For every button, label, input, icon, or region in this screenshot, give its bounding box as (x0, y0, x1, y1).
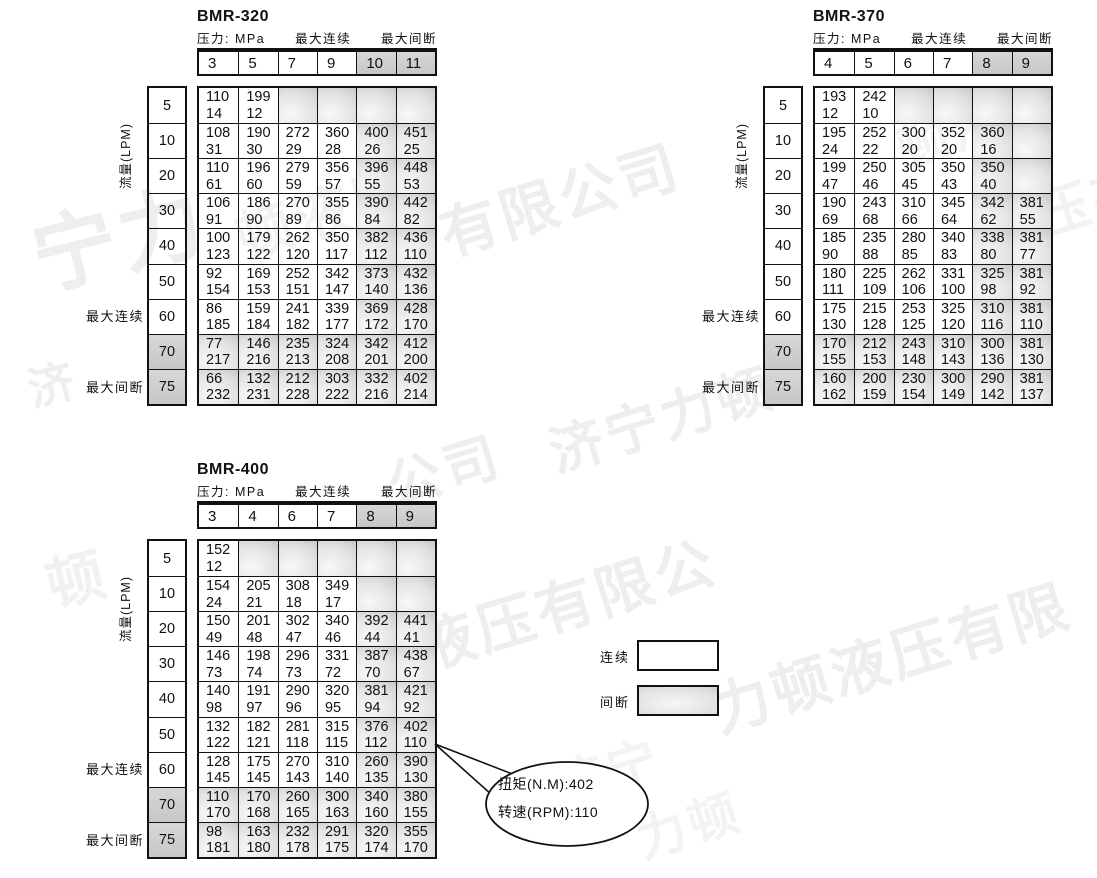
data-cell: 340160 (356, 787, 395, 822)
table-body: 1521215424205213081834917150492014830247… (197, 539, 437, 859)
flow-axis-label: 流量(LPM) (115, 100, 131, 212)
data-cell: 34262 (972, 193, 1011, 228)
speed-value: 31 (206, 142, 238, 159)
speed-value: 55 (364, 177, 395, 194)
torque-value: 451 (404, 125, 435, 142)
speed-value: 168 (246, 805, 277, 822)
torque-value: 356 (325, 160, 356, 177)
torque-value: 185 (822, 230, 854, 247)
speed-value: 170 (404, 317, 435, 334)
speed-value: 74 (246, 665, 277, 682)
watermark-text: 济 (20, 344, 84, 420)
torque-value: 262 (286, 230, 317, 247)
speed-value: 160 (364, 805, 395, 822)
speed-value: 46 (325, 630, 356, 647)
speed-value: 12 (206, 559, 238, 576)
torque-value: 436 (404, 230, 435, 247)
max-intermittent-row-label: 最大间断 (82, 370, 144, 406)
speed-value: 170 (206, 805, 238, 822)
data-cell: 160162 (815, 369, 854, 404)
data-cell: 44141 (396, 611, 435, 646)
data-cell: 10831 (199, 123, 238, 158)
torque-value: 175 (246, 754, 277, 771)
pressure-header-cell: 11 (396, 52, 435, 74)
data-cell: 30545 (894, 158, 933, 193)
speed-value: 20 (941, 142, 972, 159)
speed-value: 222 (325, 387, 356, 404)
torque-value: 325 (941, 301, 972, 318)
data-cell: 20148 (238, 611, 277, 646)
flow-row-header-cell: 20 (149, 158, 185, 193)
data-cell: 18690 (238, 193, 277, 228)
speed-value: 162 (822, 387, 854, 404)
pressure-header-cell: 3 (199, 52, 238, 74)
pressure-header-cell: 9 (1012, 52, 1051, 74)
speed-value: 62 (980, 212, 1011, 229)
speed-value: 92 (1020, 282, 1051, 299)
torque-value: 303 (325, 371, 356, 388)
flow-axis-label: 流量(LPM) (115, 553, 131, 665)
flow-row-header-cell: 20 (765, 158, 801, 193)
data-cell: 15049 (199, 611, 238, 646)
speed-value: 43 (941, 177, 972, 194)
data-cell: 262120 (278, 228, 317, 263)
speed-value: 96 (286, 700, 317, 717)
speed-value: 73 (206, 665, 238, 682)
speed-value: 155 (822, 352, 854, 369)
data-cell (396, 576, 435, 611)
data-cell: 331100 (933, 264, 972, 299)
speed-value: 72 (325, 665, 356, 682)
data-cell: 34917 (317, 576, 356, 611)
speed-value: 165 (286, 805, 317, 822)
data-cell: 241182 (278, 299, 317, 334)
torque-value: 146 (206, 648, 238, 665)
data-cell: 350117 (317, 228, 356, 263)
flow-row-header-cell: 20 (149, 611, 185, 646)
torque-value: 305 (902, 160, 933, 177)
torque-value: 308 (286, 578, 317, 595)
speed-value: 232 (206, 387, 238, 404)
data-cell: 320174 (356, 822, 395, 857)
torque-value: 252 (862, 125, 893, 142)
max-continuous-row-label: 最大连续 (82, 752, 144, 788)
data-cell: 19874 (238, 646, 277, 681)
speed-value: 14 (206, 106, 238, 123)
speed-value: 143 (941, 352, 972, 369)
torque-value: 169 (246, 266, 277, 283)
data-cell: 30818 (278, 576, 317, 611)
data-cell: 38194 (356, 681, 395, 716)
speed-value: 231 (246, 387, 277, 404)
speed-value: 180 (246, 840, 277, 857)
speed-value: 118 (286, 735, 317, 752)
torque-value: 272 (286, 125, 317, 142)
data-cell: 20521 (238, 576, 277, 611)
flow-row-header-cell: 50 (149, 717, 185, 752)
data-cell: 212228 (278, 369, 317, 404)
torque-value: 290 (286, 683, 317, 700)
torque-value: 339 (325, 301, 356, 318)
table-body: 1931224210195242522230020352203601619947… (813, 86, 1053, 406)
speed-value: 85 (902, 247, 933, 264)
table-subheader: 压力: MPa最大连续最大间断 (197, 29, 437, 50)
speed-value: 17 (325, 595, 356, 612)
torque-value: 338 (980, 230, 1011, 247)
speed-value: 120 (941, 317, 972, 334)
pressure-header-row: 456789 (813, 50, 1053, 76)
callout-speed-text: 转速(RPM):110 (498, 802, 598, 822)
speed-value: 216 (246, 352, 277, 369)
data-cell: 402214 (396, 369, 435, 404)
data-cell: 42192 (396, 681, 435, 716)
torque-value: 230 (902, 371, 933, 388)
torque-value: 193 (822, 89, 854, 106)
data-cell: 23588 (854, 228, 893, 263)
speed-value: 20 (902, 142, 933, 159)
torque-value: 412 (404, 336, 435, 353)
data-cell: 163180 (238, 822, 277, 857)
legend-continuous-swatch (637, 640, 719, 671)
data-cell: 310116 (972, 299, 1011, 334)
speed-value: 184 (246, 317, 277, 334)
flow-row-header-cell: 10 (765, 123, 801, 158)
speed-value: 109 (862, 282, 893, 299)
speed-value: 213 (286, 352, 317, 369)
speed-value: 61 (206, 177, 238, 194)
torque-value: 225 (862, 266, 893, 283)
data-cell: 31066 (894, 193, 933, 228)
speed-value: 174 (364, 840, 395, 857)
speed-value: 208 (325, 352, 356, 369)
data-cell (396, 88, 435, 123)
speed-value: 122 (246, 247, 277, 264)
data-cell: 230154 (894, 369, 933, 404)
pressure-header-cell: 9 (317, 52, 356, 74)
flow-row-header-cell: 10 (149, 123, 185, 158)
torque-value: 191 (246, 683, 277, 700)
torque-value: 281 (286, 719, 317, 736)
data-cell: 44853 (396, 158, 435, 193)
flow-row-header-cell: 50 (149, 264, 185, 299)
speed-value: 80 (980, 247, 1011, 264)
torque-value: 100 (206, 230, 238, 247)
max-intermittent-col-label: 最大间断 (381, 481, 437, 500)
data-cell: 376112 (356, 717, 395, 752)
data-cell: 19912 (238, 88, 277, 123)
max-continuous-col-label: 最大连续 (911, 28, 967, 47)
torque-value: 332 (364, 371, 395, 388)
torque-value: 66 (206, 371, 238, 388)
speed-value: 130 (1020, 352, 1051, 369)
speed-value: 67 (404, 665, 435, 682)
data-cell: 29096 (278, 681, 317, 716)
flow-row-header-cell: 50 (765, 264, 801, 299)
torque-value: 381 (1020, 195, 1051, 212)
torque-value: 86 (206, 301, 238, 318)
data-cell: 39244 (356, 611, 395, 646)
speed-value: 177 (325, 317, 356, 334)
data-cell: 381110 (1012, 299, 1051, 334)
data-cell: 412200 (396, 334, 435, 369)
torque-value: 180 (822, 266, 854, 283)
watermark-text: 有限公司 (428, 119, 690, 272)
torque-value: 340 (364, 789, 395, 806)
speed-value: 148 (902, 352, 933, 369)
speed-value: 25 (404, 142, 435, 159)
data-cell: 146216 (238, 334, 277, 369)
torque-value: 110 (206, 789, 238, 806)
flow-row-header-cell: 75 (149, 822, 185, 857)
torque-value: 428 (404, 301, 435, 318)
speed-value: 140 (364, 282, 395, 299)
speed-value: 86 (325, 212, 356, 229)
data-cell: 291175 (317, 822, 356, 857)
max-intermittent-row-label: 最大间断 (82, 823, 144, 859)
speed-value: 228 (286, 387, 317, 404)
data-cell: 77217 (199, 334, 238, 369)
torque-value: 232 (286, 824, 317, 841)
torque-value: 331 (941, 266, 972, 283)
speed-value: 111 (822, 282, 854, 299)
data-cell: 92154 (199, 264, 238, 299)
torque-value: 160 (822, 371, 854, 388)
data-cell: 32598 (972, 264, 1011, 299)
speed-value: 100 (941, 282, 972, 299)
callout-shape (425, 728, 685, 868)
speed-value: 140 (325, 770, 356, 787)
data-cell: 339177 (317, 299, 356, 334)
data-cell: 175145 (238, 752, 277, 787)
speed-value: 154 (902, 387, 933, 404)
speed-value: 137 (1020, 387, 1051, 404)
flow-row-header-cell: 70 (765, 334, 801, 369)
speed-value: 24 (206, 595, 238, 612)
data-cell: 38177 (1012, 228, 1051, 263)
torque-value: 381 (1020, 266, 1051, 283)
torque-value: 400 (364, 125, 395, 142)
data-cell: 19069 (815, 193, 854, 228)
torque-value: 190 (246, 125, 277, 142)
torque-value: 175 (822, 301, 854, 318)
data-cell: 27089 (278, 193, 317, 228)
data-cell: 15424 (199, 576, 238, 611)
speed-value: 59 (286, 177, 317, 194)
speed-value: 18 (286, 595, 317, 612)
catalog-page: 宁力顿液压有限公司济公司济宁力顿顿液压有限公力顿液压有限济宁力顿顿液压有济宁 B… (0, 0, 1097, 878)
data-cell: 303222 (317, 369, 356, 404)
speed-value: 94 (364, 700, 395, 717)
torque-value: 441 (404, 613, 435, 630)
speed-value: 200 (404, 352, 435, 369)
max-intermittent-col-label: 最大间断 (997, 28, 1053, 47)
flow-axis-label: 流量(LPM) (731, 100, 747, 212)
torque-value: 387 (364, 648, 395, 665)
data-cell (356, 88, 395, 123)
speed-value: 125 (902, 317, 933, 334)
torque-value: 310 (902, 195, 933, 212)
data-cell (396, 541, 435, 576)
torque-value: 270 (286, 195, 317, 212)
data-cell: 28085 (894, 228, 933, 263)
data-cell (1012, 88, 1051, 123)
pressure-header-row: 35791011 (197, 50, 437, 76)
speed-value: 92 (404, 700, 435, 717)
data-cell (356, 576, 395, 611)
data-cell: 19524 (815, 123, 854, 158)
data-cell (238, 541, 277, 576)
data-cell: 132122 (199, 717, 238, 752)
torque-value: 260 (364, 754, 395, 771)
torque-value: 280 (902, 230, 933, 247)
torque-value: 376 (364, 719, 395, 736)
speed-value: 47 (286, 630, 317, 647)
max-continuous-row-label: 最大连续 (82, 299, 144, 335)
speed-value: 123 (206, 247, 238, 264)
torque-value: 250 (862, 160, 893, 177)
torque-value: 241 (286, 301, 317, 318)
data-cell: 35220 (933, 123, 972, 158)
data-cell: 281118 (278, 717, 317, 752)
pressure-header-cell: 4 (815, 52, 854, 74)
flow-row-header-cell: 10 (149, 576, 185, 611)
speed-value: 112 (364, 247, 395, 264)
torque-value: 106 (206, 195, 238, 212)
performance-table-bmr-370: BMR-370压力: MPa最大连续最大间断456789510203040506… (698, 10, 1053, 410)
torque-value: 296 (286, 648, 317, 665)
torque-value: 355 (325, 195, 356, 212)
torque-value: 396 (364, 160, 395, 177)
torque-value: 201 (246, 613, 277, 630)
data-cell: 170168 (238, 787, 277, 822)
data-cell: 180111 (815, 264, 854, 299)
torque-value: 205 (246, 578, 277, 595)
data-cell: 14098 (199, 681, 238, 716)
max-continuous-col-label: 最大连续 (295, 28, 351, 47)
data-cell: 342147 (317, 264, 356, 299)
torque-value: 392 (364, 613, 395, 630)
data-cell: 44282 (396, 193, 435, 228)
torque-value: 381 (1020, 301, 1051, 318)
pressure-header-cell: 5 (238, 52, 277, 74)
data-cell (933, 88, 972, 123)
speed-value: 216 (364, 387, 395, 404)
speed-value: 70 (364, 665, 395, 682)
torque-value: 243 (902, 336, 933, 353)
torque-value: 320 (364, 824, 395, 841)
torque-value: 179 (246, 230, 277, 247)
data-cell: 342201 (356, 334, 395, 369)
data-cell: 19660 (238, 158, 277, 193)
data-cell: 25046 (854, 158, 893, 193)
data-cell: 300163 (317, 787, 356, 822)
pressure-header-cell: 9 (396, 505, 435, 527)
speed-value: 83 (941, 247, 972, 264)
torque-value: 302 (286, 613, 317, 630)
speed-value: 90 (246, 212, 277, 229)
torque-value: 92 (206, 266, 238, 283)
speed-value: 153 (862, 352, 893, 369)
torque-value: 242 (862, 89, 893, 106)
speed-value: 153 (246, 282, 277, 299)
speed-value: 12 (822, 106, 854, 123)
speed-value: 110 (404, 247, 435, 264)
pressure-header-cell: 8 (356, 505, 395, 527)
data-cell: 19947 (815, 158, 854, 193)
data-cell: 243148 (894, 334, 933, 369)
flow-row-header-cell: 70 (149, 334, 185, 369)
data-cell: 212153 (854, 334, 893, 369)
torque-value: 342 (325, 266, 356, 283)
speed-value: 136 (980, 352, 1011, 369)
data-cell: 38192 (1012, 264, 1051, 299)
data-cell: 34083 (933, 228, 972, 263)
pressure-header-cell: 4 (238, 505, 277, 527)
data-cell: 35657 (317, 158, 356, 193)
torque-value: 199 (822, 160, 854, 177)
flow-row-header-cell: 40 (149, 228, 185, 263)
torque-value: 170 (822, 336, 854, 353)
speed-value: 44 (364, 630, 395, 647)
data-cell: 27959 (278, 158, 317, 193)
data-cell: 98181 (199, 822, 238, 857)
torque-value: 262 (902, 266, 933, 283)
data-cell: 10691 (199, 193, 238, 228)
torque-value: 310 (980, 301, 1011, 318)
speed-value: 135 (364, 770, 395, 787)
data-cell: 200159 (854, 369, 893, 404)
speed-value: 66 (902, 212, 933, 229)
torque-value: 170 (246, 789, 277, 806)
speed-value: 98 (206, 700, 238, 717)
speed-value: 130 (822, 317, 854, 334)
torque-value: 381 (1020, 230, 1051, 247)
data-cell: 310140 (317, 752, 356, 787)
speed-value: 91 (206, 212, 238, 229)
torque-value: 300 (941, 371, 972, 388)
max-continuous-row-label: 最大连续 (698, 299, 760, 335)
data-cell: 14673 (199, 646, 238, 681)
data-cell: 35040 (972, 158, 1011, 193)
flow-row-header-cell: 30 (149, 193, 185, 228)
pressure-header-cell: 6 (278, 505, 317, 527)
data-cell: 170155 (815, 334, 854, 369)
speed-value: 178 (286, 840, 317, 857)
data-cell: 11014 (199, 88, 238, 123)
speed-value: 16 (980, 142, 1011, 159)
data-cell: 290142 (972, 369, 1011, 404)
speed-value: 69 (822, 212, 854, 229)
torque-value: 438 (404, 648, 435, 665)
torque-value: 270 (286, 754, 317, 771)
torque-value: 195 (822, 125, 854, 142)
torque-value: 186 (246, 195, 277, 212)
torque-value: 350 (980, 160, 1011, 177)
torque-value: 196 (246, 160, 277, 177)
speed-value: 143 (286, 770, 317, 787)
data-cell: 36028 (317, 123, 356, 158)
torque-value: 253 (902, 301, 933, 318)
speed-value: 201 (364, 352, 395, 369)
speed-value: 82 (404, 212, 435, 229)
torque-value: 152 (206, 542, 238, 559)
data-cell: 369172 (356, 299, 395, 334)
speed-value: 45 (902, 177, 933, 194)
torque-value: 342 (364, 336, 395, 353)
data-cell: 19312 (815, 88, 854, 123)
torque-value: 421 (404, 683, 435, 700)
flow-row-header-cell: 60 (149, 752, 185, 787)
